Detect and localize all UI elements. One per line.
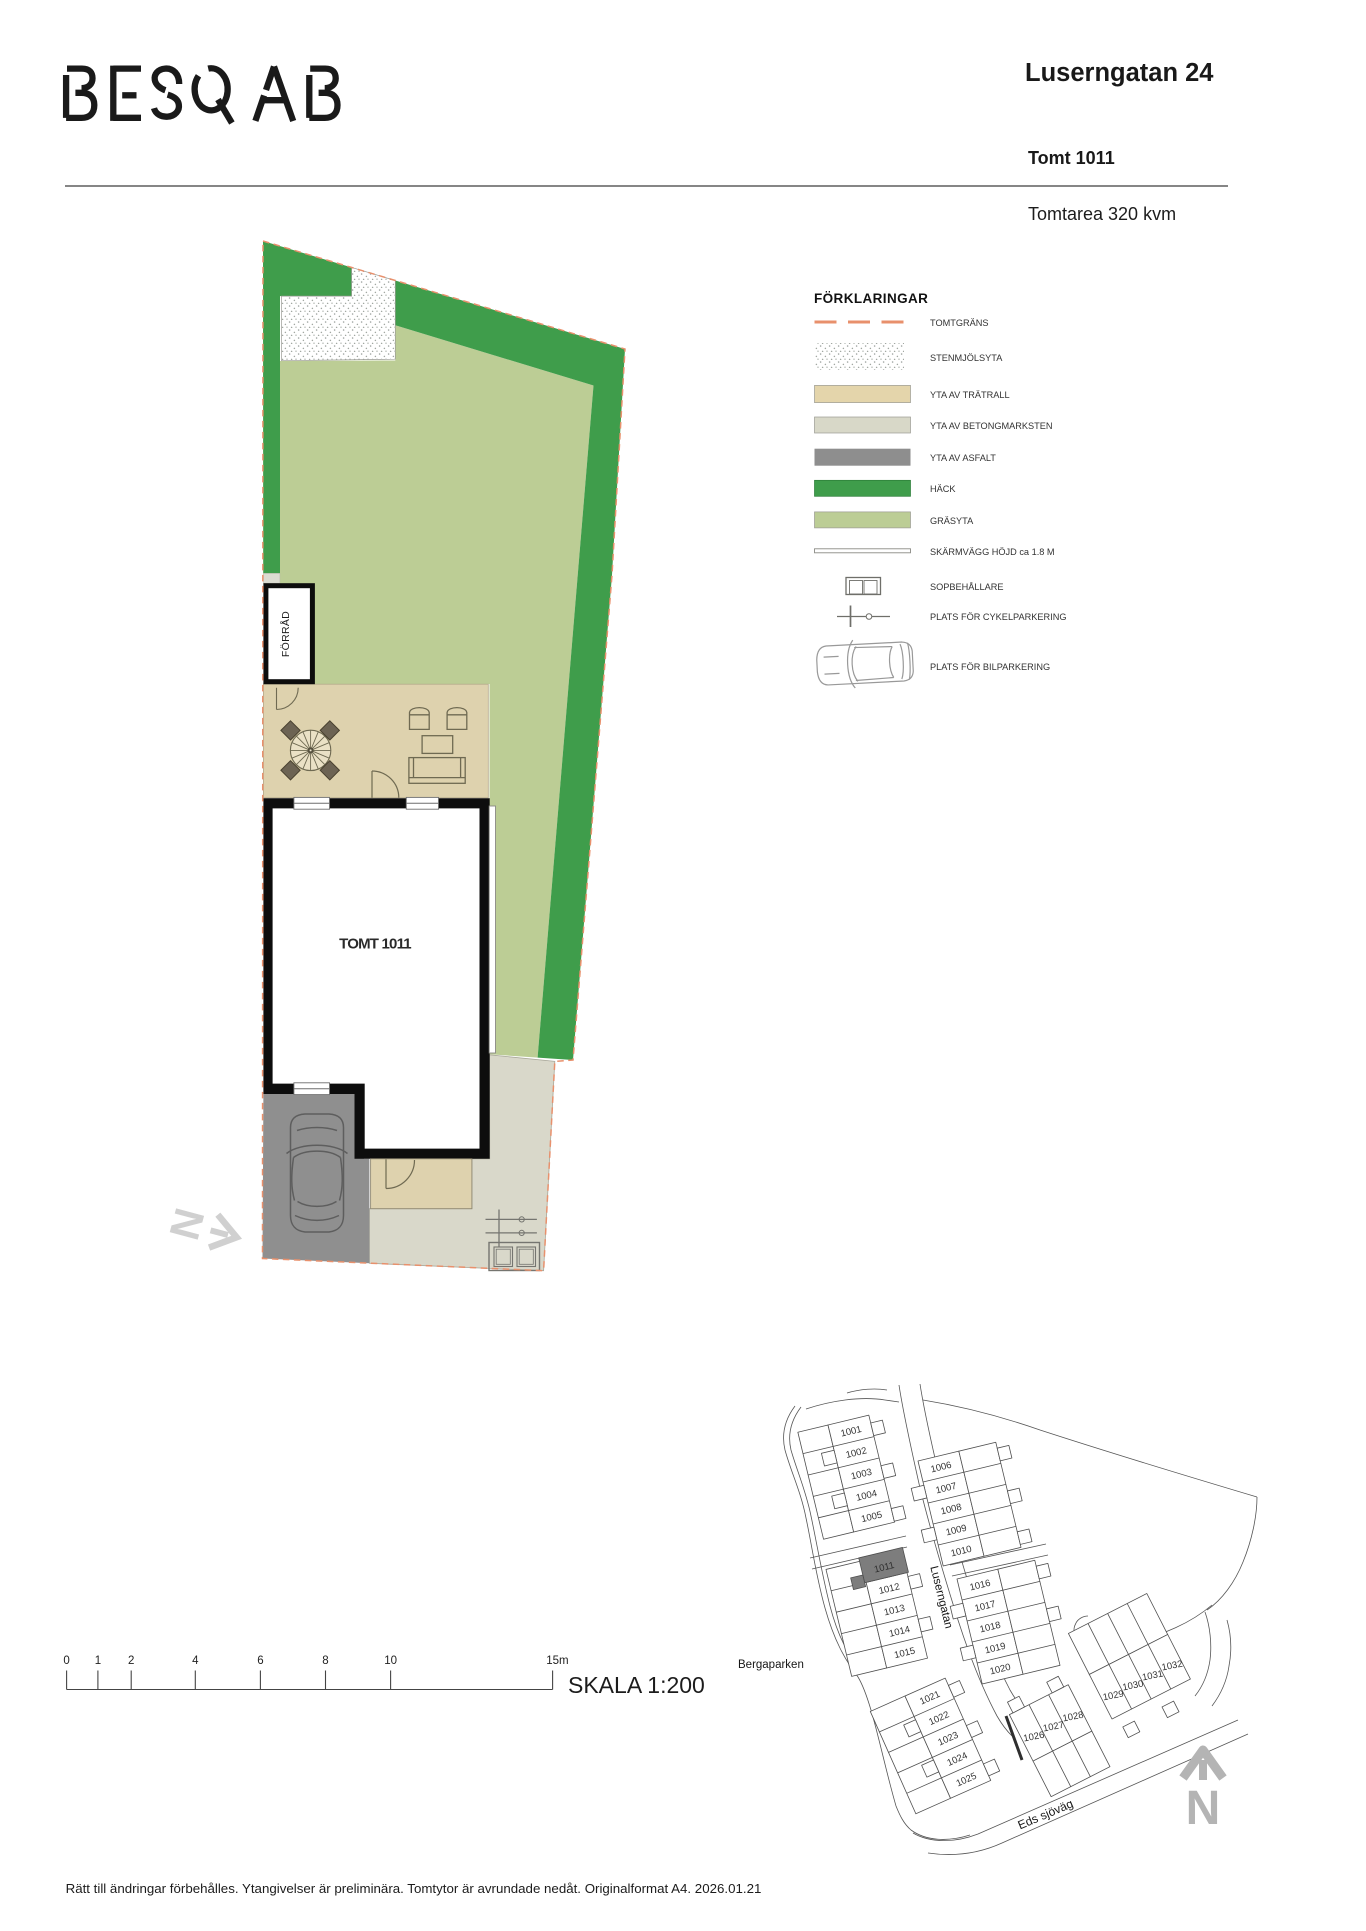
svg-text:STENMJÖLSYTA: STENMJÖLSYTA (930, 353, 1003, 363)
svg-text:1: 1 (95, 1655, 101, 1667)
svg-text:2: 2 (128, 1655, 134, 1667)
svg-text:N: N (1186, 1782, 1221, 1835)
svg-text:PLATS FÖR BILPARKERING: PLATS FÖR BILPARKERING (930, 662, 1050, 672)
svg-text:HÄCK: HÄCK (930, 484, 956, 494)
svg-text:15: 15 (546, 1655, 559, 1667)
svg-text:8: 8 (322, 1655, 328, 1667)
svg-text:m: m (559, 1655, 569, 1667)
svg-text:YTA AV BETONGMARKSTEN: YTA AV BETONGMARKSTEN (930, 421, 1053, 431)
svg-text:Tomt 1011: Tomt 1011 (1028, 148, 1115, 168)
svg-text:Luserngatan 24: Luserngatan 24 (1025, 59, 1214, 87)
svg-text:FÖRRÅD: FÖRRÅD (279, 611, 292, 657)
svg-text:6: 6 (257, 1655, 263, 1667)
svg-text:TOMTGRÄNS: TOMTGRÄNS (930, 318, 989, 328)
svg-text:TOMT 1011: TOMT 1011 (339, 936, 411, 953)
svg-text:Rätt till ändringar förbehålle: Rätt till ändringar förbehålles. Ytangiv… (66, 1881, 762, 1896)
svg-text:10: 10 (384, 1655, 397, 1667)
svg-text:PLATS FÖR CYKELPARKERING: PLATS FÖR CYKELPARKERING (930, 612, 1066, 622)
svg-text:YTA AV ASFALT: YTA AV ASFALT (930, 453, 996, 463)
svg-text:0: 0 (63, 1655, 69, 1667)
svg-text:Tomtarea 320 kvm: Tomtarea 320 kvm (1028, 204, 1176, 224)
svg-text:YTA AV TRÄTRALL: YTA AV TRÄTRALL (930, 390, 1010, 400)
svg-text:4: 4 (192, 1655, 199, 1667)
svg-text:SKÄRMVÄGG HÖJD ca 1.8 M: SKÄRMVÄGG HÖJD ca 1.8 M (930, 547, 1055, 557)
svg-text:SKALA 1:200: SKALA 1:200 (568, 1672, 705, 1698)
svg-text:Bergaparken: Bergaparken (738, 1659, 804, 1671)
svg-text:GRÄSYTA: GRÄSYTA (930, 516, 974, 526)
svg-text:SOPBEHÅLLARE: SOPBEHÅLLARE (930, 582, 1004, 592)
svg-text:FÖRKLARINGAR: FÖRKLARINGAR (814, 291, 928, 306)
